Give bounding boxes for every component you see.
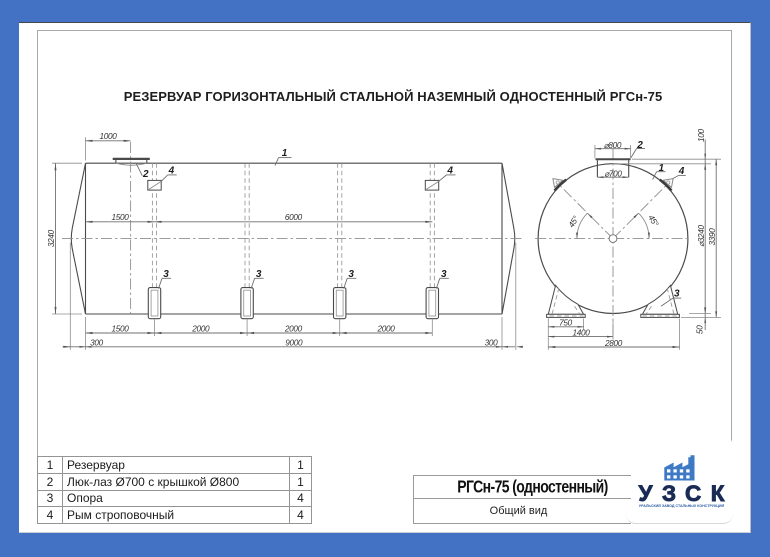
svg-text:1500: 1500 — [111, 324, 129, 333]
svg-text:1: 1 — [282, 148, 288, 159]
svg-text:3: 3 — [348, 269, 354, 280]
svg-text:4: 4 — [678, 166, 685, 177]
svg-text:1: 1 — [659, 163, 665, 174]
svg-text:4: 4 — [168, 166, 175, 177]
svg-text:3240: 3240 — [47, 229, 56, 247]
svg-text:300: 300 — [485, 338, 499, 347]
svg-text:2800: 2800 — [604, 339, 623, 348]
svg-text:750: 750 — [559, 319, 573, 328]
svg-text:3: 3 — [441, 269, 447, 280]
svg-text:⌀800: ⌀800 — [604, 141, 622, 150]
svg-text:3: 3 — [674, 289, 680, 300]
svg-text:⌀700: ⌀700 — [604, 170, 622, 179]
svg-text:1400: 1400 — [572, 328, 590, 337]
svg-text:2: 2 — [142, 169, 149, 180]
svg-text:9000: 9000 — [285, 338, 303, 347]
svg-text:1000: 1000 — [100, 132, 118, 141]
svg-text:100: 100 — [697, 128, 706, 142]
svg-text:3: 3 — [163, 269, 169, 280]
svg-text:3390: 3390 — [708, 228, 717, 246]
svg-text:⌀3240: ⌀3240 — [697, 224, 706, 246]
svg-text:2000: 2000 — [284, 324, 303, 333]
svg-text:1500: 1500 — [111, 213, 129, 222]
svg-text:2000: 2000 — [376, 324, 395, 333]
svg-text:3: 3 — [256, 269, 262, 280]
svg-text:50: 50 — [696, 325, 705, 334]
svg-text:2: 2 — [636, 140, 643, 151]
svg-text:2000: 2000 — [191, 324, 210, 333]
svg-text:4: 4 — [446, 166, 453, 177]
svg-text:6000: 6000 — [285, 213, 303, 222]
svg-text:300: 300 — [90, 338, 104, 347]
